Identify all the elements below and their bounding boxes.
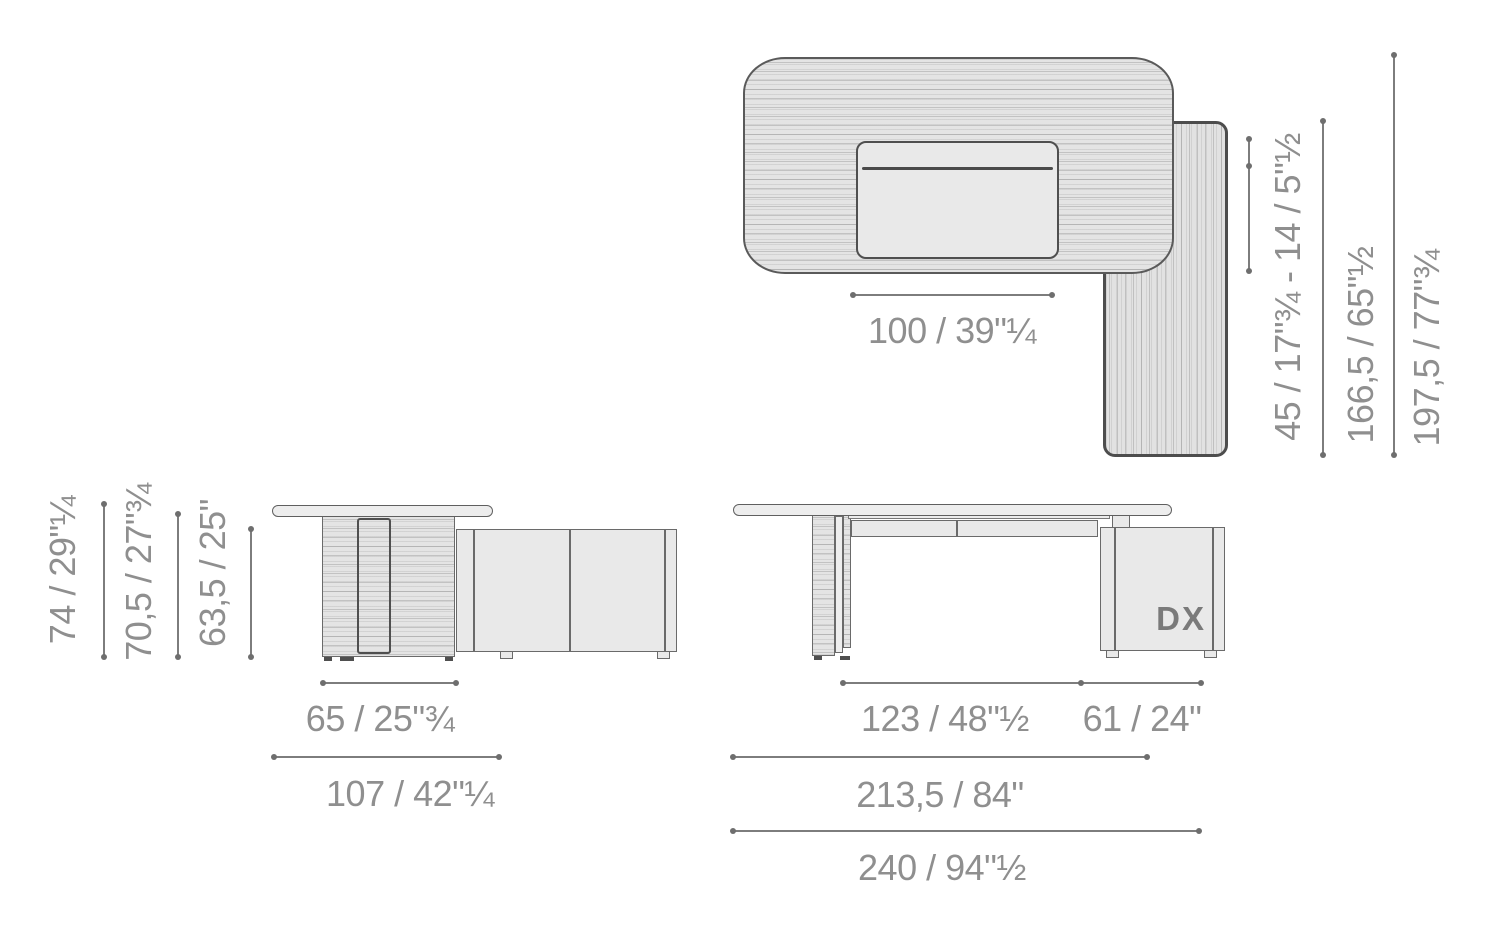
side-dim-line-height-total (103, 503, 105, 658)
plan-pedestal (856, 141, 1059, 259)
front-desk-top (733, 504, 1172, 516)
front-dim-line-spans (842, 682, 1202, 684)
side-credenza-edge-line-right (664, 530, 666, 651)
side-leg-foot-1 (324, 657, 332, 661)
plan-pedestal-drawer-gap (862, 167, 1053, 170)
plan-dim-label-return-depth: 166,5 / 65"½ (1343, 247, 1379, 444)
front-dim-line-total-width (732, 830, 1200, 832)
plan-dim-middot-overhang (1246, 163, 1252, 169)
side-dim-label-height-worktop: 70,5 / 27"¾ (121, 483, 157, 660)
side-dim-label-leg-depth: 65 / 25"¾ (306, 701, 454, 737)
plan-dim-label-total-depth: 197,5 / 77"¾ (1409, 250, 1445, 447)
front-cabinet-edge-line-right (1212, 528, 1214, 650)
side-dim-label-height-credenza: 63,5 / 25" (195, 499, 231, 647)
side-dim-line-total-depth (273, 756, 500, 758)
side-dim-line-leg-depth (322, 682, 457, 684)
plan-dim-line-return-depth (1322, 120, 1324, 456)
plan-dim-line-width (852, 294, 1053, 296)
side-leg-foot-2 (340, 657, 354, 661)
front-leg-strip-outer (843, 513, 851, 648)
side-credenza (456, 529, 677, 652)
front-cabinet-edge-line-left (1114, 528, 1116, 650)
side-leg-strip (357, 518, 391, 654)
side-dim-line-height-worktop (177, 513, 179, 658)
front-cabinet-foot-left (1106, 650, 1119, 658)
front-dim-line-top-width (732, 756, 1148, 758)
front-cabinet-foot-right (1204, 650, 1217, 658)
side-dim-label-height-total: 74 / 29"¼ (45, 496, 81, 644)
front-dim-label-desk-span: 123 / 48"½ (861, 701, 1029, 737)
front-leg-foot-1 (814, 656, 822, 660)
side-desk-top (272, 505, 493, 517)
front-dim-label-total-width: 240 / 94"½ (858, 850, 1026, 886)
plan-dim-label-overhang: 45 / 17"¾ - 14 / 5"½ (1270, 133, 1306, 441)
side-credenza-edge-line-left (473, 530, 475, 651)
front-cabinet: DX (1100, 527, 1225, 651)
front-drawer-divider (956, 521, 958, 536)
side-leg-foot-3 (445, 657, 453, 661)
side-credenza-foot-left (500, 651, 513, 659)
front-leg-foot-2 (840, 656, 850, 660)
plan-dim-line-total-depth (1393, 54, 1395, 456)
plan-dim-label-width: 100 / 39"¼ (868, 313, 1036, 349)
front-dim-label-top-width: 213,5 / 84" (856, 777, 1023, 813)
front-dim-middot-spans (1078, 680, 1084, 686)
front-dim-label-cabinet-span: 61 / 24" (1083, 701, 1202, 737)
side-credenza-divider-line (569, 530, 571, 651)
front-leg-panel (812, 513, 835, 656)
front-drawer-band (851, 520, 1098, 537)
front-cabinet-label: DX (1156, 602, 1206, 635)
plan-dim-line-overhang (1248, 138, 1250, 272)
side-credenza-foot-right (657, 651, 670, 659)
front-leg-strip-inner (835, 516, 843, 653)
side-dim-label-total-depth: 107 / 42"¼ (326, 776, 494, 812)
side-dim-line-height-credenza (250, 528, 252, 658)
dimension-drawing: 100 / 39"¼ 45 / 17"¾ - 14 / 5"½ 166,5 / … (0, 0, 1500, 937)
